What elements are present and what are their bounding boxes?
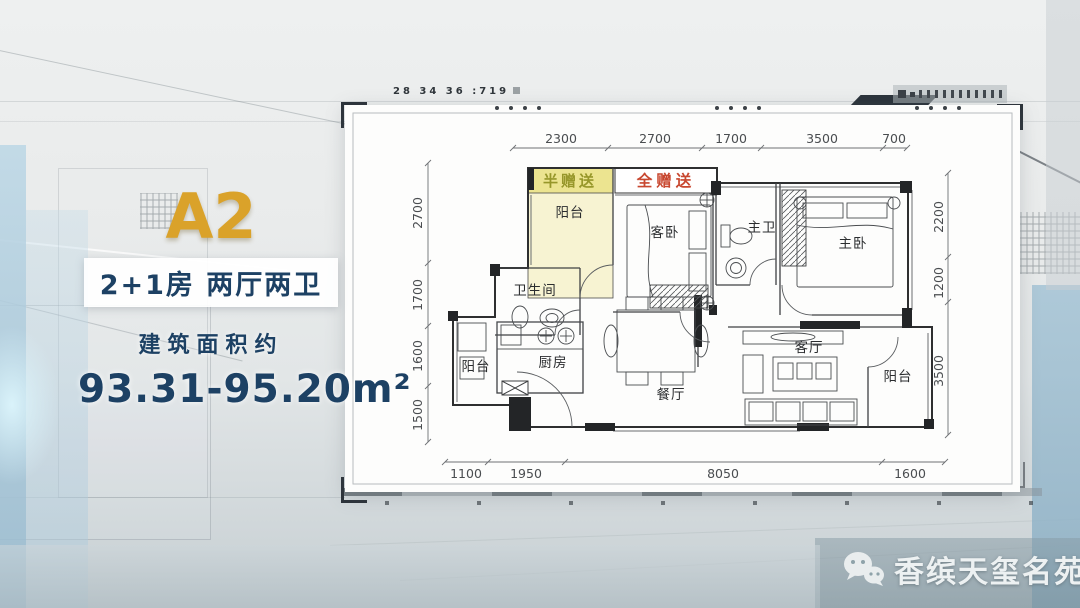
gift-full-label: 全赠送 (636, 171, 696, 190)
video-frame: 28 34 36 :719 (0, 0, 1080, 608)
area-value: 93.31-95.20m² (78, 367, 344, 412)
room-label-guest-bedroom: 客卧 (651, 224, 680, 241)
bg-line (0, 48, 352, 126)
room-label-master-bath: 主卫 (748, 220, 777, 236)
room-label-living: 客厅 (795, 339, 824, 356)
room-label-kitchen: 厨房 (539, 355, 568, 371)
hud-ticker-text: 28 34 36 :719 (393, 86, 509, 97)
sheet-top-dots (495, 106, 961, 110)
dim-right-2: 1200 (931, 267, 946, 299)
dim-top-5: 700 (882, 131, 906, 146)
dim-top-3: 1700 (715, 131, 747, 146)
dim-top-1: 2300 (545, 131, 577, 146)
hud-barcode-stripes (919, 90, 1002, 98)
dim-right-1: 2200 (931, 201, 946, 233)
room-label-master-bedroom: 主卧 (839, 236, 868, 252)
room-label-dining: 餐厅 (657, 387, 686, 403)
dim-left-2: 1700 (410, 279, 425, 311)
floor-reflection (0, 545, 820, 608)
floor-plan: 半赠送 全赠送 阳台 客卧 主卫 主卧 卫生间 厨房 阳台 餐厅 客厅 阳台 (345, 105, 1020, 492)
layout-badge: 2+1房 两厅两卫 (84, 258, 339, 307)
hud-ticker: 28 34 36 :719 (393, 86, 520, 97)
dim-bottom-4: 1600 (894, 466, 926, 481)
dim-left-3: 1600 (410, 340, 425, 372)
blueprint-sheet: 半赠送 全赠送 阳台 客卧 主卫 主卧 卫生间 厨房 阳台 餐厅 客厅 阳台 (345, 105, 1020, 492)
unit-name: A2 (78, 186, 344, 248)
gift-half-label: 半赠送 (543, 172, 597, 190)
dim-right-3: 3500 (931, 355, 946, 387)
floor-dot-row (385, 501, 1045, 505)
watermark: 香缤天玺名苑 (842, 547, 1080, 591)
dim-bottom-1: 1100 (450, 466, 482, 481)
hud-barcode-square (898, 90, 906, 98)
room-label-balcony-right: 阳台 (884, 369, 913, 385)
glass-glow-left (0, 325, 60, 485)
hud-barcode (893, 85, 1007, 103)
room-label-balcony-top: 阳台 (556, 205, 585, 221)
brand-name: 香缤天玺名苑 (894, 547, 1080, 591)
entry-door-box (502, 381, 528, 395)
dim-left-1: 2700 (410, 197, 425, 229)
dim-top-2: 2700 (639, 131, 671, 146)
hud-ticker-endbox (513, 87, 520, 94)
dim-left-4: 1500 (410, 399, 425, 431)
dim-top-4: 3500 (806, 131, 838, 146)
wechat-icon (842, 550, 886, 588)
unit-info-panel: A2 2+1房 两厅两卫 建筑面积约 93.31-95.20m² (78, 186, 344, 412)
dim-bottom-2: 1950 (510, 466, 542, 481)
hud-barcode-square (910, 92, 915, 97)
room-label-balcony-left: 阳台 (462, 359, 491, 375)
area-label: 建筑面积约 (78, 327, 344, 359)
dim-bottom-3: 8050 (707, 466, 739, 481)
room-label-bathroom: 卫生间 (513, 283, 557, 299)
glass-panel-right-top (1046, 0, 1080, 290)
